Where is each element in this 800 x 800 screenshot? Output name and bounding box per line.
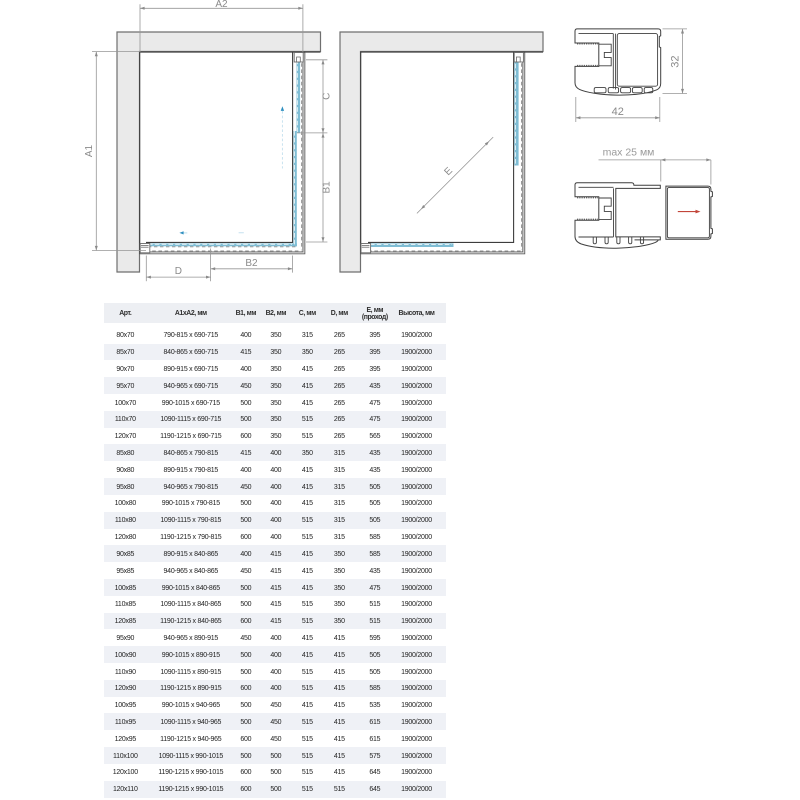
svg-text:max 25 мм: max 25 мм [603, 147, 655, 159]
svg-text:B2: B2 [245, 258, 258, 269]
svg-text:B1: B1 [321, 181, 332, 194]
svg-text:C: C [321, 93, 332, 100]
svg-text:42: 42 [612, 106, 624, 118]
svg-text:D: D [175, 266, 182, 277]
svg-text:32: 32 [670, 55, 682, 67]
svg-text:A1: A1 [84, 144, 95, 157]
svg-text:A2: A2 [215, 0, 228, 10]
svg-text:E: E [442, 165, 455, 178]
